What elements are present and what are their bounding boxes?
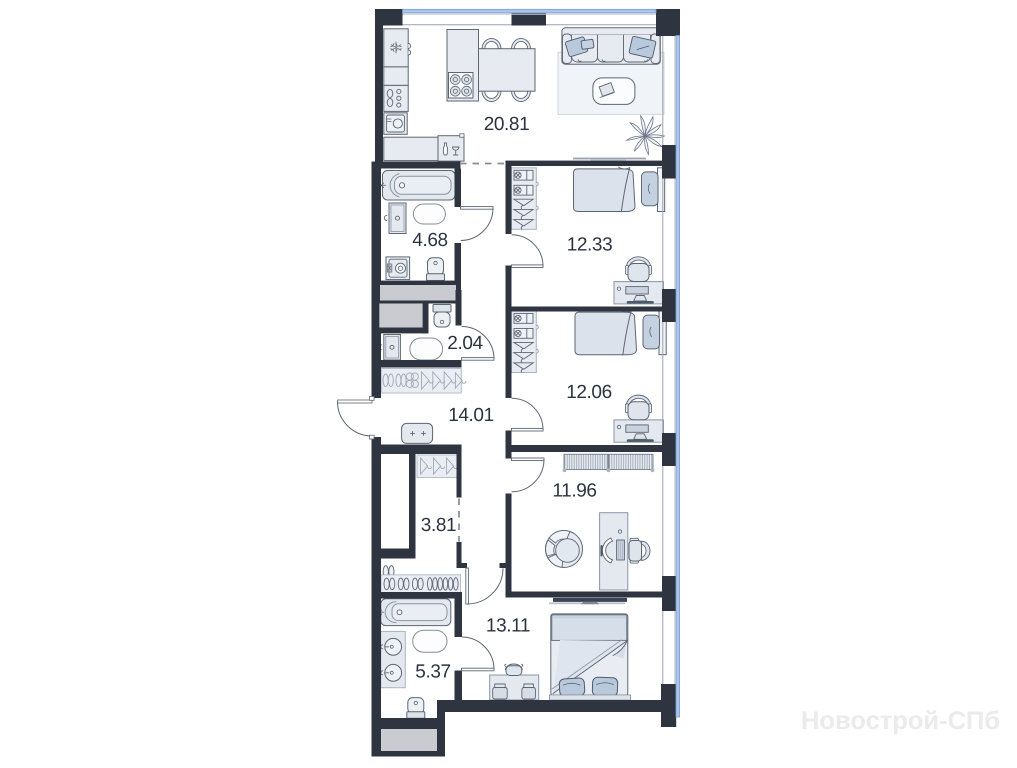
svg-text:14.01: 14.01 (448, 405, 494, 426)
svg-text:5.37: 5.37 (415, 662, 450, 683)
svg-text:4.68: 4.68 (412, 230, 447, 251)
svg-text:Новострой-СПб: Новострой-СПб (801, 707, 1000, 735)
svg-text:11.96: 11.96 (552, 481, 596, 502)
svg-text:20.81: 20.81 (484, 114, 530, 135)
svg-text:12.33: 12.33 (567, 235, 613, 256)
svg-text:13.11: 13.11 (486, 616, 530, 637)
svg-text:12.06: 12.06 (566, 382, 612, 403)
svg-text:3.81: 3.81 (421, 515, 456, 536)
svg-text:2.04: 2.04 (447, 333, 483, 354)
